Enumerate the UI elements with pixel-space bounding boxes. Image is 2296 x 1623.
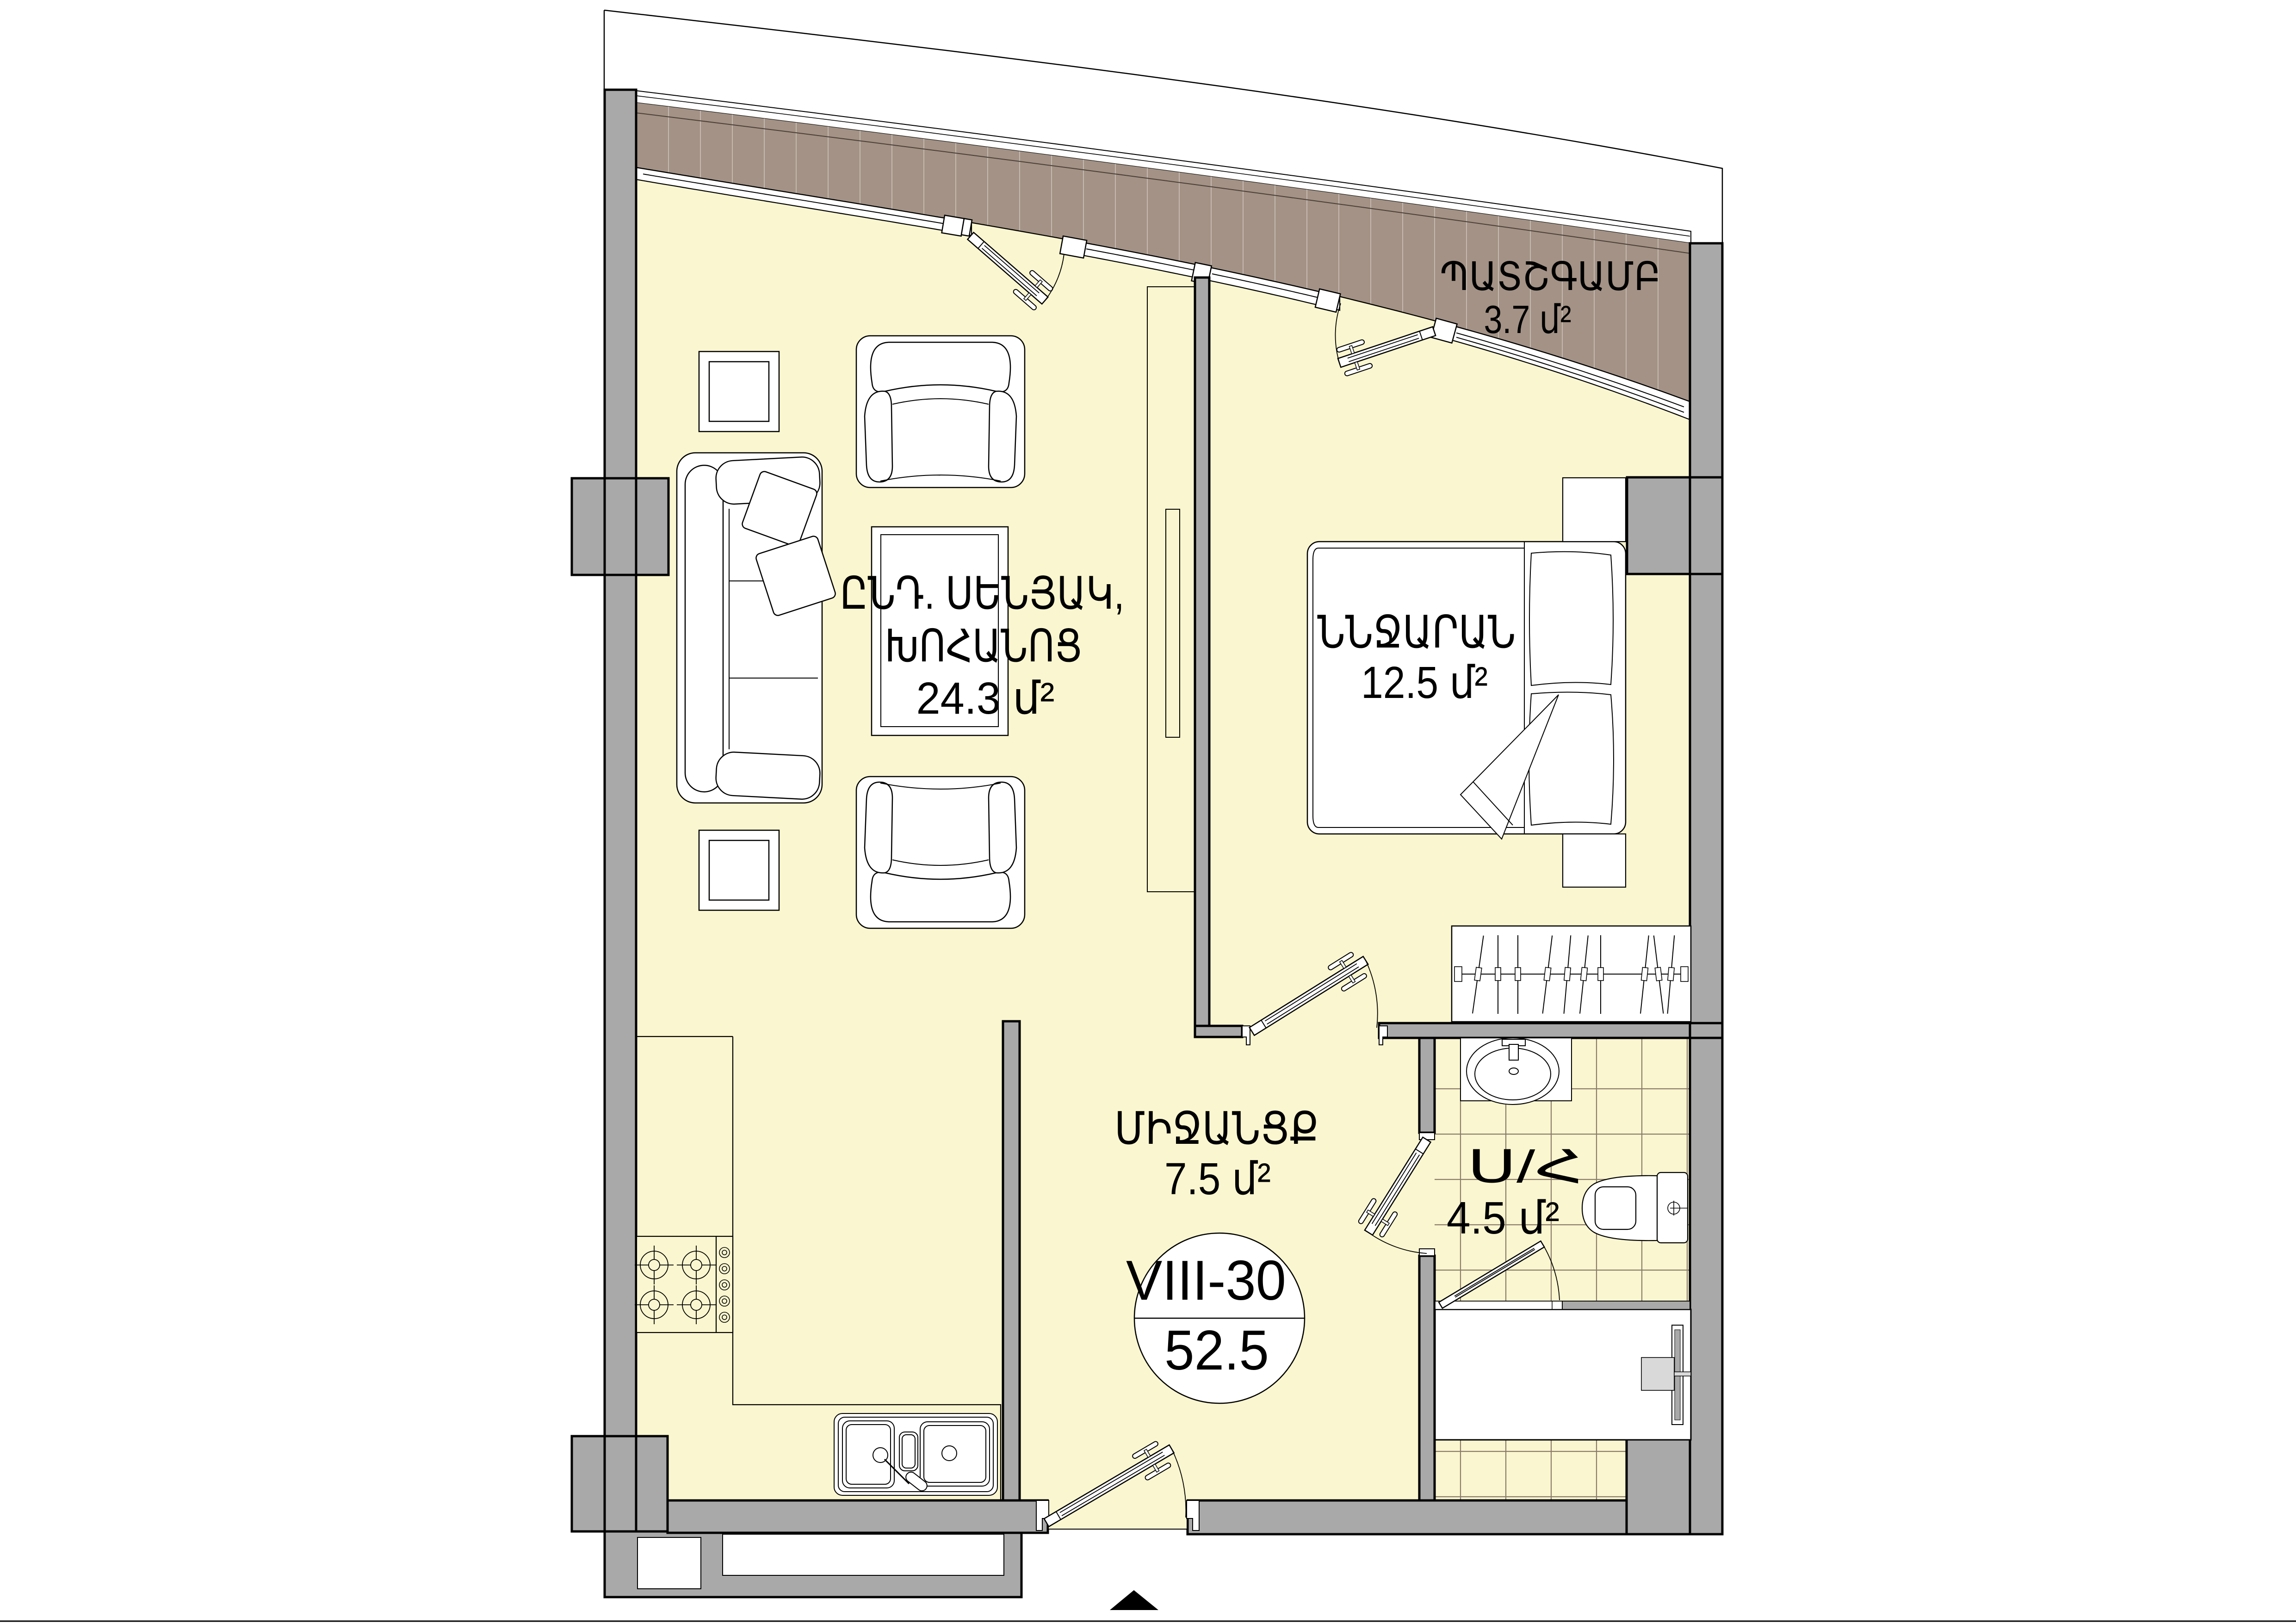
svg-text:Ս/Հ: Ս/Հ <box>1467 1141 1584 1192</box>
svg-text:VIII-30: VIII-30 <box>1126 1249 1286 1312</box>
svg-text:ՄԻՋԱՆՑՔ: ՄԻՋԱՆՑՔ <box>1114 1103 1319 1154</box>
svg-text:24.3 մ²: 24.3 մ² <box>916 673 1055 723</box>
svg-text:4.5 մ²: 4.5 մ² <box>1447 1192 1560 1243</box>
svg-text:3.7 մ²: 3.7 մ² <box>1484 298 1572 342</box>
svg-text:ԸՆԴ. ՍԵՆՅԱԿ,: ԸՆԴ. ՍԵՆՅԱԿ, <box>840 568 1125 618</box>
svg-text:52.5: 52.5 <box>1164 1319 1269 1382</box>
svg-text:7.5 մ²: 7.5 մ² <box>1164 1154 1271 1204</box>
svg-text:12.5 մ²: 12.5 մ² <box>1361 657 1488 708</box>
svg-text:ՊԱՏՇԳԱՄԲ: ՊԱՏՇԳԱՄԲ <box>1440 255 1661 299</box>
svg-text:ԽՈՀԱՆՈՑ: ԽՈՀԱՆՈՑ <box>885 621 1083 671</box>
svg-text:ՆՆՋԱՐԱՆ: ՆՆՋԱՐԱՆ <box>1318 607 1516 657</box>
